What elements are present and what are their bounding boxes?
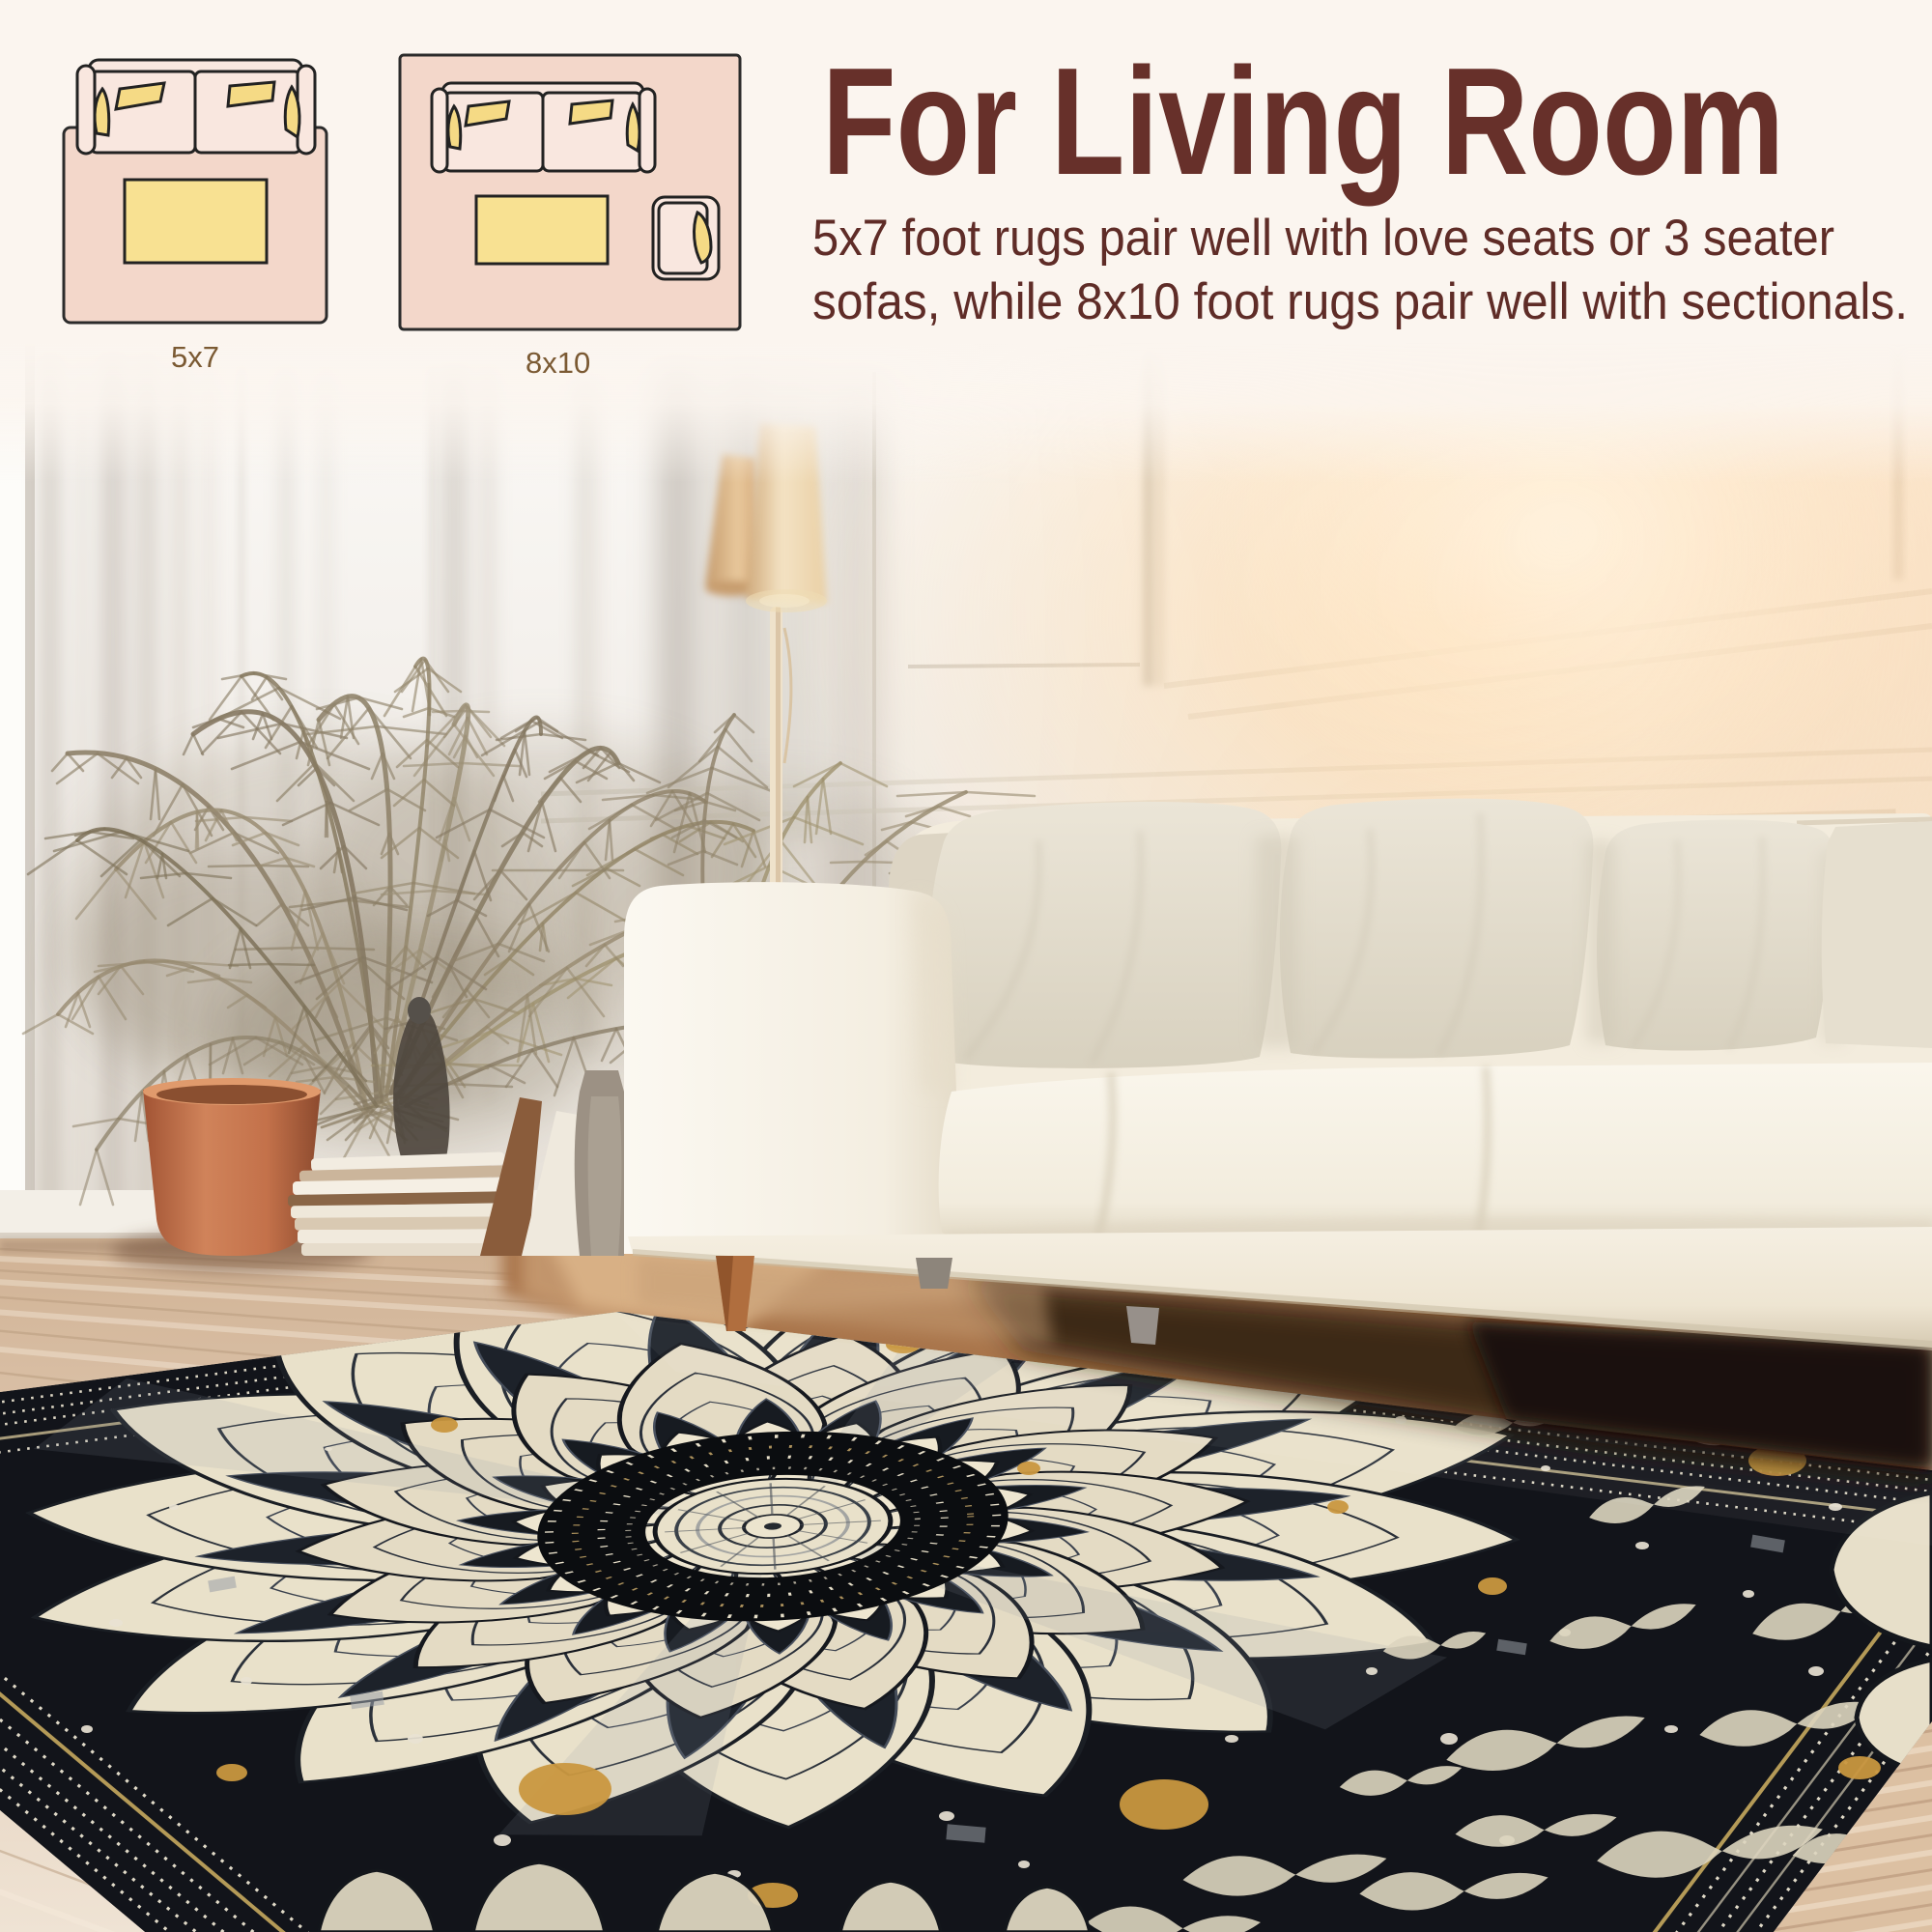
svg-text:5x7 foot rugs pair well with l: 5x7 foot rugs pair well with love seats …	[812, 210, 1834, 267]
svg-text:sofas, while 8x10 foot rugs pa: sofas, while 8x10 foot rugs pair well wi…	[812, 273, 1908, 330]
svg-text:8x10: 8x10	[526, 346, 590, 380]
svg-text:5x7: 5x7	[171, 340, 219, 374]
svg-text:For Living Room: For Living Room	[822, 37, 1784, 207]
